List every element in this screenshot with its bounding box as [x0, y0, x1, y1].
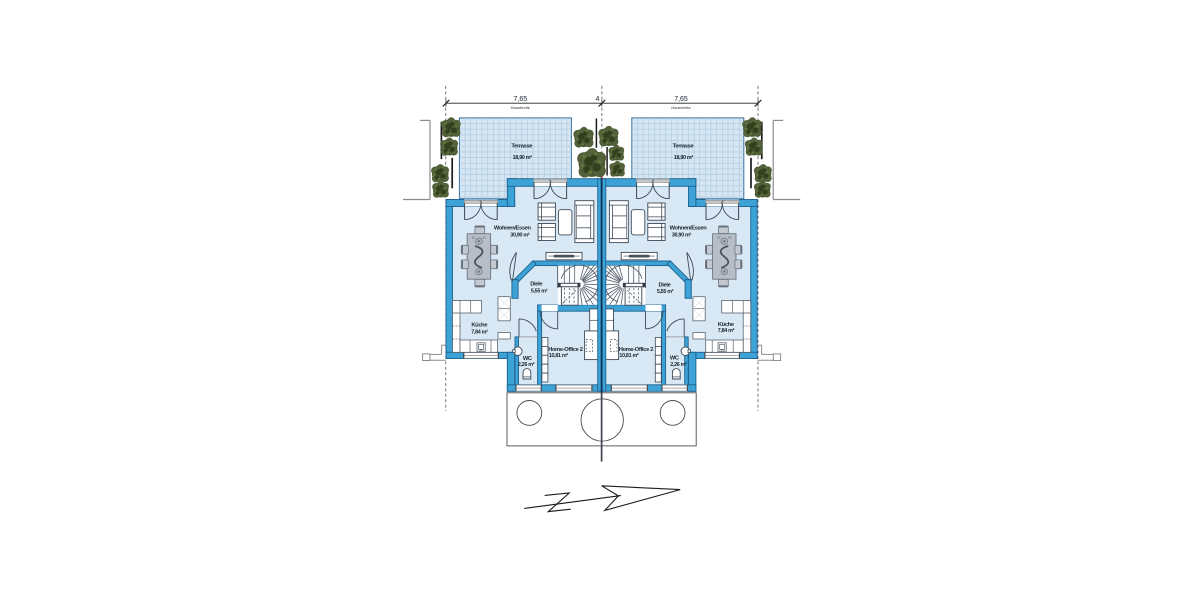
svg-text:2,26 m²: 2,26 m²: [518, 362, 535, 368]
svg-text:Terrasse: Terrasse: [511, 144, 532, 150]
svg-text:30,90 m²: 30,90 m²: [672, 232, 692, 238]
svg-text:Hausbreite: Hausbreite: [671, 105, 691, 110]
svg-text:Home-Office 2: Home-Office 2: [619, 347, 654, 353]
svg-text:Wohnen/Essen: Wohnen/Essen: [494, 225, 532, 231]
svg-text:18,90 m²: 18,90 m²: [674, 155, 694, 161]
svg-text:Diele: Diele: [530, 282, 542, 288]
svg-text:WC: WC: [670, 356, 679, 362]
svg-text:Küche: Küche: [718, 322, 734, 328]
svg-text:Home-Office 2: Home-Office 2: [548, 347, 583, 353]
svg-text:Wohnen/Essen: Wohnen/Essen: [670, 225, 708, 231]
svg-text:2,26 m²: 2,26 m²: [670, 362, 687, 368]
svg-text:7,65: 7,65: [513, 96, 527, 103]
svg-text:7,84 m²: 7,84 m²: [718, 328, 735, 334]
svg-text:10,81 m²: 10,81 m²: [549, 353, 569, 359]
svg-text:5,55 m²: 5,55 m²: [657, 289, 674, 295]
svg-text:7,84 m²: 7,84 m²: [471, 329, 488, 335]
svg-text:10,81 m²: 10,81 m²: [619, 353, 639, 359]
svg-text:Küche: Küche: [471, 322, 487, 328]
svg-text:18,90 m²: 18,90 m²: [513, 155, 533, 161]
svg-text:Hausbreite: Hausbreite: [511, 105, 531, 110]
svg-text:Diele: Diele: [659, 282, 671, 288]
svg-text:5,55 m²: 5,55 m²: [531, 289, 548, 295]
svg-text:7,65: 7,65: [674, 96, 688, 103]
svg-text:WC: WC: [523, 356, 532, 362]
svg-text:4: 4: [596, 96, 600, 103]
svg-text:30,90 m²: 30,90 m²: [510, 232, 530, 238]
svg-text:Terrasse: Terrasse: [673, 144, 694, 150]
